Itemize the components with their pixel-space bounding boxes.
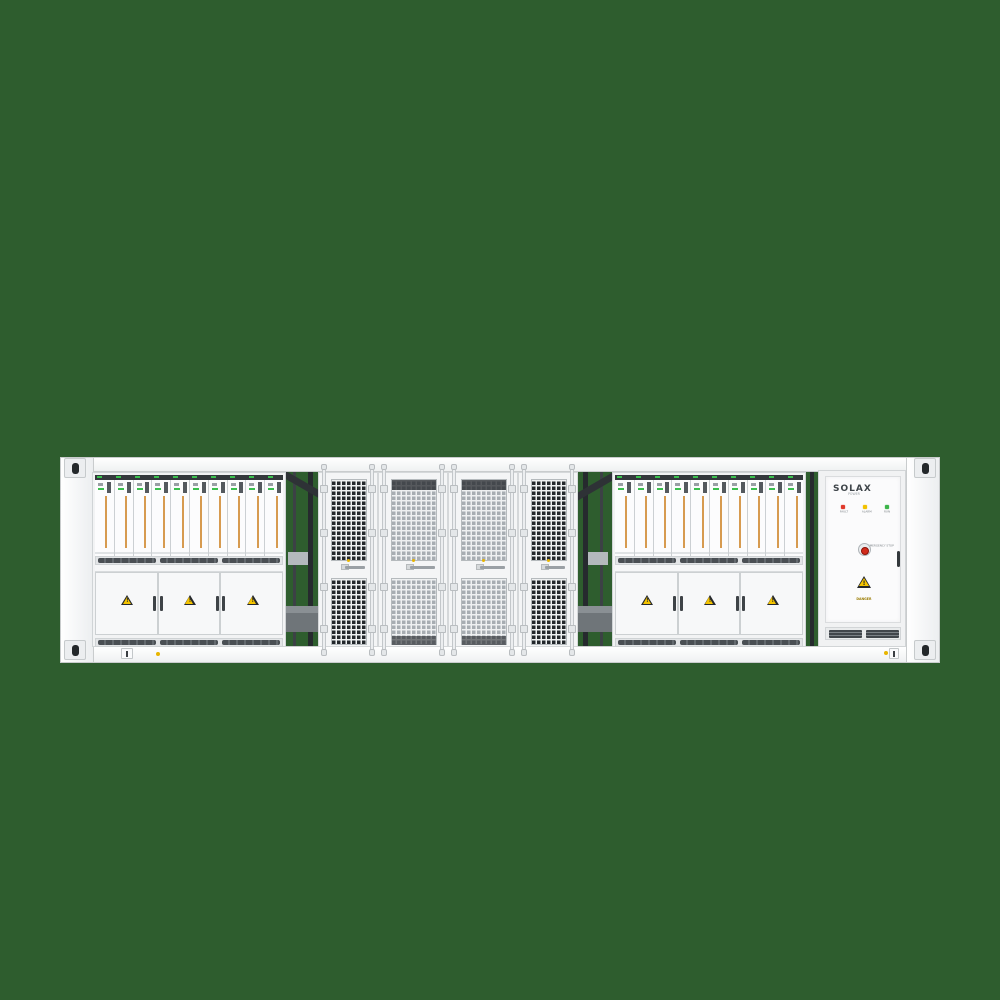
module-led	[118, 488, 124, 490]
vent-slat	[160, 640, 218, 645]
module-foot	[171, 552, 189, 554]
vent-slat	[742, 558, 800, 563]
danger-label: DANGER	[856, 597, 871, 601]
door-handle	[673, 596, 676, 611]
module-handle-slot	[722, 482, 726, 493]
mesh-panel-lower	[461, 578, 507, 645]
module-handle-slot	[703, 482, 707, 493]
module-led	[638, 488, 644, 490]
cable-duct	[286, 606, 318, 632]
module-handle-slot	[127, 482, 131, 493]
module-led	[732, 488, 738, 490]
warning-exclamation: !	[121, 599, 133, 604]
casting-hole	[72, 463, 79, 474]
module-label	[694, 483, 699, 486]
hinge-block	[568, 529, 576, 537]
lock-rod-cap	[451, 649, 457, 656]
frame-gap	[578, 472, 612, 646]
door-handle	[680, 596, 683, 611]
base-indicator-dot	[884, 651, 888, 655]
warning-exclamation: !	[857, 581, 871, 587]
base-switch-slot	[126, 651, 128, 657]
vent-slat	[618, 558, 676, 563]
module-handle-slot	[164, 482, 168, 493]
vent-slat	[829, 630, 862, 638]
hinge-block	[568, 625, 576, 633]
led-label: ALARM	[862, 510, 868, 513]
module-handle-slot	[759, 482, 763, 493]
latch-pin	[347, 559, 350, 562]
module-label	[268, 483, 273, 486]
module-foot	[654, 552, 672, 554]
vent-grille	[95, 556, 283, 565]
mesh-panel-lower	[531, 578, 567, 645]
lock-rod-cap	[381, 464, 387, 470]
hinge-block	[450, 625, 458, 633]
latch-lever	[480, 566, 505, 569]
module-stripe	[645, 496, 647, 548]
module-label	[713, 483, 718, 486]
hinge-block	[438, 485, 446, 493]
battery-module	[784, 480, 803, 556]
module-foot	[115, 552, 133, 554]
module-foot	[265, 552, 283, 554]
warning-triangle-icon: !	[121, 595, 133, 606]
solax-warning-area: !	[857, 576, 871, 588]
base-switch-slot	[893, 651, 895, 657]
module-label	[174, 483, 179, 486]
module-label	[732, 483, 737, 486]
left-battery-bay: PCS Distribution Cabinet !!!	[92, 472, 286, 647]
door-handle	[897, 551, 900, 567]
base-switch-plate	[121, 648, 133, 659]
battery-module	[170, 480, 189, 556]
module-label	[675, 483, 680, 486]
rack-led-strip	[97, 476, 281, 478]
vent-slat	[222, 558, 280, 563]
solax-cabinet-door: SOLAX POWER FAULTALARMRUN EMERGENCY STOP…	[825, 476, 901, 623]
module-led	[249, 488, 255, 490]
mesh-panel-upper	[531, 479, 567, 561]
casting-hole	[922, 463, 929, 474]
warning-triangle-icon: !	[704, 595, 716, 606]
right-battery-bay: PCS Distribution Cabinet !!!	[612, 472, 806, 647]
battery-module	[653, 480, 672, 556]
module-label	[657, 483, 662, 486]
module-label	[788, 483, 793, 486]
latch-pin	[412, 559, 415, 562]
container-bottom-rail	[60, 646, 940, 663]
lock-rod-cap	[439, 649, 445, 656]
module-foot	[748, 552, 766, 554]
corner-casting	[64, 640, 86, 660]
corner-casting	[914, 640, 936, 660]
hinge-block	[380, 485, 388, 493]
estop-label: EMERGENCY STOP	[868, 544, 894, 547]
container-top-rail	[60, 457, 940, 472]
module-led	[193, 488, 199, 490]
hinge-block	[380, 529, 388, 537]
warning-exclamation: !	[641, 599, 653, 604]
door-handle	[153, 596, 156, 611]
module-led	[751, 488, 757, 490]
module-foot	[190, 552, 208, 554]
module-handle-slot	[258, 482, 262, 493]
hinge-block	[508, 529, 516, 537]
hinge-block	[568, 485, 576, 493]
product-render-scene: PCS Distribution Cabinet !!! PCS Distrib…	[0, 0, 1000, 1000]
module-stripe	[125, 496, 127, 548]
solax-logo-sub: POWER	[848, 492, 860, 496]
latch-pin	[547, 559, 550, 562]
door-handle	[160, 596, 163, 611]
hinge-block	[520, 625, 528, 633]
mesh-panel-upper	[331, 479, 367, 561]
rack-led-strip	[617, 476, 801, 478]
lock-rod-cap	[509, 464, 515, 470]
module-handle-slot	[778, 482, 782, 493]
module-label	[193, 483, 198, 486]
vent-grille	[825, 627, 901, 640]
module-led	[98, 488, 104, 490]
module-stripe	[720, 496, 722, 548]
danger-label-wrap: DANGER	[844, 589, 884, 608]
battery-module	[208, 480, 227, 556]
module-stripe	[758, 496, 760, 548]
battery-module	[95, 480, 114, 556]
door-handle	[736, 596, 739, 611]
battery-module	[151, 480, 170, 556]
lock-rod-cap	[321, 464, 327, 470]
lock-rod-cap	[521, 649, 527, 656]
module-stripe	[200, 496, 202, 548]
module-led	[657, 488, 663, 490]
module-foot	[672, 552, 690, 554]
module-handle-slot	[627, 482, 631, 493]
hinge-block	[380, 625, 388, 633]
module-label	[118, 483, 123, 486]
module-handle-slot	[647, 482, 651, 493]
hinge-block	[450, 583, 458, 591]
vent-slat	[618, 640, 676, 645]
module-handle-slot	[145, 482, 149, 493]
module-foot	[134, 552, 152, 554]
base-indicator-dot	[156, 652, 160, 656]
battery-module	[765, 480, 784, 556]
hinge-block	[508, 583, 516, 591]
module-stripe	[739, 496, 741, 548]
module-foot	[766, 552, 784, 554]
module-foot	[785, 552, 803, 554]
warning-exclamation: !	[704, 599, 716, 604]
battery-module	[728, 480, 747, 556]
module-led	[675, 488, 681, 490]
module-handle-slot	[277, 482, 281, 493]
base-switch-plate	[889, 648, 899, 659]
frame-crossbar	[288, 552, 308, 565]
cabinet-door: !	[95, 572, 158, 635]
module-foot	[228, 552, 246, 554]
cabinet-door: !	[615, 572, 678, 635]
module-foot	[710, 552, 728, 554]
status-led-row: FAULTALARMRUN	[826, 505, 902, 519]
container-right-post	[906, 457, 940, 663]
battery-module	[114, 480, 133, 556]
vent-slat	[742, 640, 800, 645]
module-handle-slot	[239, 482, 243, 493]
battery-module	[671, 480, 690, 556]
module-handle-slot	[665, 482, 669, 493]
warning-exclamation: !	[184, 599, 196, 604]
battery-module	[245, 480, 264, 556]
vent-slat	[680, 640, 738, 645]
battery-module	[690, 480, 709, 556]
module-foot	[95, 552, 114, 554]
casting-hole	[72, 645, 79, 656]
module-stripe	[219, 496, 221, 548]
frame-crossbar	[588, 552, 608, 565]
cable-duct-top	[578, 606, 612, 613]
lock-rod-cap	[569, 649, 575, 656]
vent-slat	[222, 640, 280, 645]
led-indicator	[863, 505, 867, 509]
vent-grille	[615, 556, 803, 565]
module-label	[769, 483, 774, 486]
battery-module	[747, 480, 766, 556]
module-label	[137, 483, 142, 486]
module-stripe	[625, 496, 627, 548]
module-stripe	[163, 496, 165, 548]
led-indicator	[885, 505, 889, 509]
cabinet-door: !	[158, 572, 221, 635]
vent-slat	[160, 558, 218, 563]
latch-pin	[482, 559, 485, 562]
warning-triangle-icon: !	[184, 595, 196, 606]
latch-lever	[410, 566, 435, 569]
hinge-block	[320, 583, 328, 591]
module-handle-slot	[202, 482, 206, 493]
module-led	[769, 488, 775, 490]
warning-triangle-icon: !	[247, 595, 259, 606]
mesh-panel-upper	[461, 479, 507, 561]
bay-label-bar: PCS Distribution Cabinet	[615, 565, 803, 572]
module-stripe	[683, 496, 685, 548]
hinge-block	[438, 529, 446, 537]
lock-rod-cap	[451, 464, 457, 470]
hinge-block	[380, 583, 388, 591]
door-handle	[742, 596, 745, 611]
module-handle-slot	[797, 482, 801, 493]
hinge-block	[320, 625, 328, 633]
module-label	[155, 483, 160, 486]
mesh-shadow-band	[462, 636, 506, 645]
mesh-door	[518, 472, 578, 647]
module-foot	[209, 552, 227, 554]
hinge-block	[368, 529, 376, 537]
battery-module	[709, 480, 728, 556]
cable-duct-top	[286, 606, 318, 613]
cabinet-door: !	[740, 572, 803, 635]
hinge-block	[320, 485, 328, 493]
module-foot	[635, 552, 653, 554]
lock-rod-cap	[369, 464, 375, 470]
module-label	[751, 483, 756, 486]
module-foot	[246, 552, 264, 554]
module-led	[231, 488, 237, 490]
estop-button	[858, 543, 871, 556]
module-foot	[152, 552, 170, 554]
module-handle-slot	[183, 482, 187, 493]
container-left-post	[60, 457, 94, 663]
mesh-shadow-band	[392, 636, 436, 645]
led-label: FAULT	[840, 510, 846, 513]
vent-grille	[95, 638, 283, 647]
module-led	[694, 488, 700, 490]
module-led	[174, 488, 180, 490]
module-stripe	[257, 496, 259, 548]
module-foot	[729, 552, 747, 554]
vent-slat	[866, 630, 899, 638]
hinge-block	[508, 485, 516, 493]
warning-triangle-icon: !	[767, 595, 779, 606]
module-label	[638, 483, 643, 486]
module-led	[212, 488, 218, 490]
battery-module	[133, 480, 152, 556]
solax-transformer-cabinet: SOLAX POWER FAULTALARMRUN EMERGENCY STOP…	[818, 470, 906, 647]
warning-exclamation: !	[247, 599, 259, 604]
hinge-block	[438, 625, 446, 633]
door-handle	[216, 596, 219, 611]
warning-triangle-icon: !	[857, 576, 871, 589]
module-handle-slot	[221, 482, 225, 493]
corner-casting	[64, 458, 86, 478]
module-led	[268, 488, 274, 490]
module-led	[618, 488, 624, 490]
hinge-block	[450, 485, 458, 493]
bay-label-bar: PCS Distribution Cabinet	[95, 565, 283, 572]
vent-grille	[615, 638, 803, 647]
hinge-block	[368, 583, 376, 591]
hinge-block	[368, 485, 376, 493]
mesh-door	[378, 472, 448, 647]
mesh-panel-upper	[391, 479, 437, 561]
battery-module	[227, 480, 246, 556]
module-label	[231, 483, 236, 486]
module-handle-slot	[741, 482, 745, 493]
module-handle-slot	[684, 482, 688, 493]
vent-slat	[680, 558, 738, 563]
module-stripe	[276, 496, 278, 548]
mesh-door	[448, 472, 518, 647]
module-stripe	[664, 496, 666, 548]
mesh-door	[318, 472, 378, 647]
led-indicator	[841, 505, 845, 509]
hinge-block	[520, 485, 528, 493]
cable-duct	[578, 606, 612, 632]
hinge-block	[438, 583, 446, 591]
hinge-block	[450, 529, 458, 537]
cabinet-door: !	[220, 572, 283, 635]
led-indicator-group: RUN	[878, 505, 896, 519]
module-led	[713, 488, 719, 490]
battery-module	[264, 480, 283, 556]
module-handle-slot	[107, 482, 111, 493]
module-stripe	[702, 496, 704, 548]
vent-slat	[98, 640, 156, 645]
frame-gap	[286, 472, 318, 646]
battery-module	[189, 480, 208, 556]
mesh-panel-lower	[391, 578, 437, 645]
module-stripe	[105, 496, 107, 548]
mesh-shadow-band	[392, 480, 436, 490]
warning-exclamation: !	[767, 599, 779, 604]
latch-lever	[345, 566, 365, 569]
lock-rod-cap	[509, 649, 515, 656]
hinge-block	[368, 625, 376, 633]
hinge-block	[520, 583, 528, 591]
led-indicator-group: ALARM	[856, 505, 874, 519]
lock-rod-cap	[521, 464, 527, 470]
vent-slat	[98, 558, 156, 563]
hinge-block	[320, 529, 328, 537]
casting-hole	[922, 645, 929, 656]
door-handle	[222, 596, 225, 611]
module-label	[212, 483, 217, 486]
mesh-shadow-band	[462, 480, 506, 490]
lock-rod-cap	[321, 649, 327, 656]
module-led	[137, 488, 143, 490]
mesh-panel-lower	[331, 578, 367, 645]
module-led	[155, 488, 161, 490]
led-indicator-group: FAULT	[834, 505, 852, 519]
led-label: RUN	[884, 510, 890, 513]
module-label	[98, 483, 103, 486]
lock-rod-cap	[381, 649, 387, 656]
frame-post	[810, 472, 814, 646]
diagonal-brace	[286, 472, 318, 501]
warning-triangle-icon: !	[641, 595, 653, 606]
module-label	[249, 483, 254, 486]
module-stripe	[777, 496, 779, 548]
module-stripe	[182, 496, 184, 548]
battery-module	[634, 480, 653, 556]
module-stripe	[144, 496, 146, 548]
hinge-block	[568, 583, 576, 591]
lock-rod-cap	[439, 464, 445, 470]
module-foot	[691, 552, 709, 554]
battery-module	[615, 480, 634, 556]
lock-rod-cap	[569, 464, 575, 470]
corner-casting	[914, 458, 936, 478]
latch-lever	[545, 566, 565, 569]
module-stripe	[238, 496, 240, 548]
hinge-block	[520, 529, 528, 537]
lock-rod-cap	[369, 649, 375, 656]
module-foot	[615, 552, 634, 554]
module-stripe	[796, 496, 798, 548]
hinge-block	[508, 625, 516, 633]
cabinet-door: !	[678, 572, 741, 635]
module-label	[618, 483, 623, 486]
module-led	[788, 488, 794, 490]
